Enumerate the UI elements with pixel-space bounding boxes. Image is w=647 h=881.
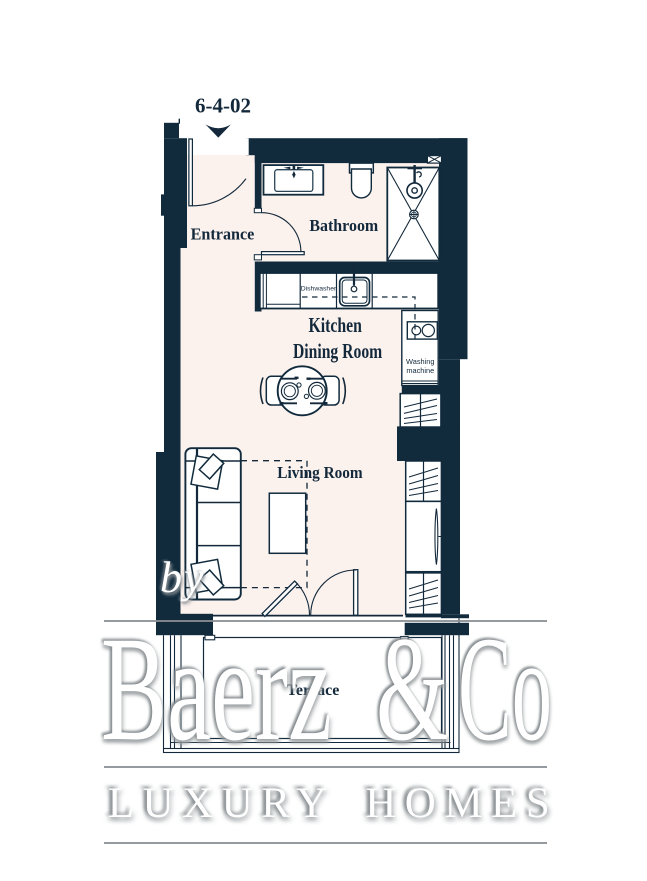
svg-text:Entrance: Entrance: [191, 224, 255, 243]
svg-text:6-4-02: 6-4-02: [195, 94, 251, 118]
svg-text:machine: machine: [406, 366, 434, 375]
svg-text:Bathroom: Bathroom: [309, 216, 378, 236]
svg-text:Dishwasher: Dishwasher: [301, 285, 337, 292]
svg-text:Washing: Washing: [406, 357, 434, 366]
svg-text:Kitchen: Kitchen: [309, 314, 363, 338]
svg-text:Dining Room: Dining Room: [293, 340, 383, 364]
svg-text:Living Room: Living Room: [277, 464, 363, 482]
